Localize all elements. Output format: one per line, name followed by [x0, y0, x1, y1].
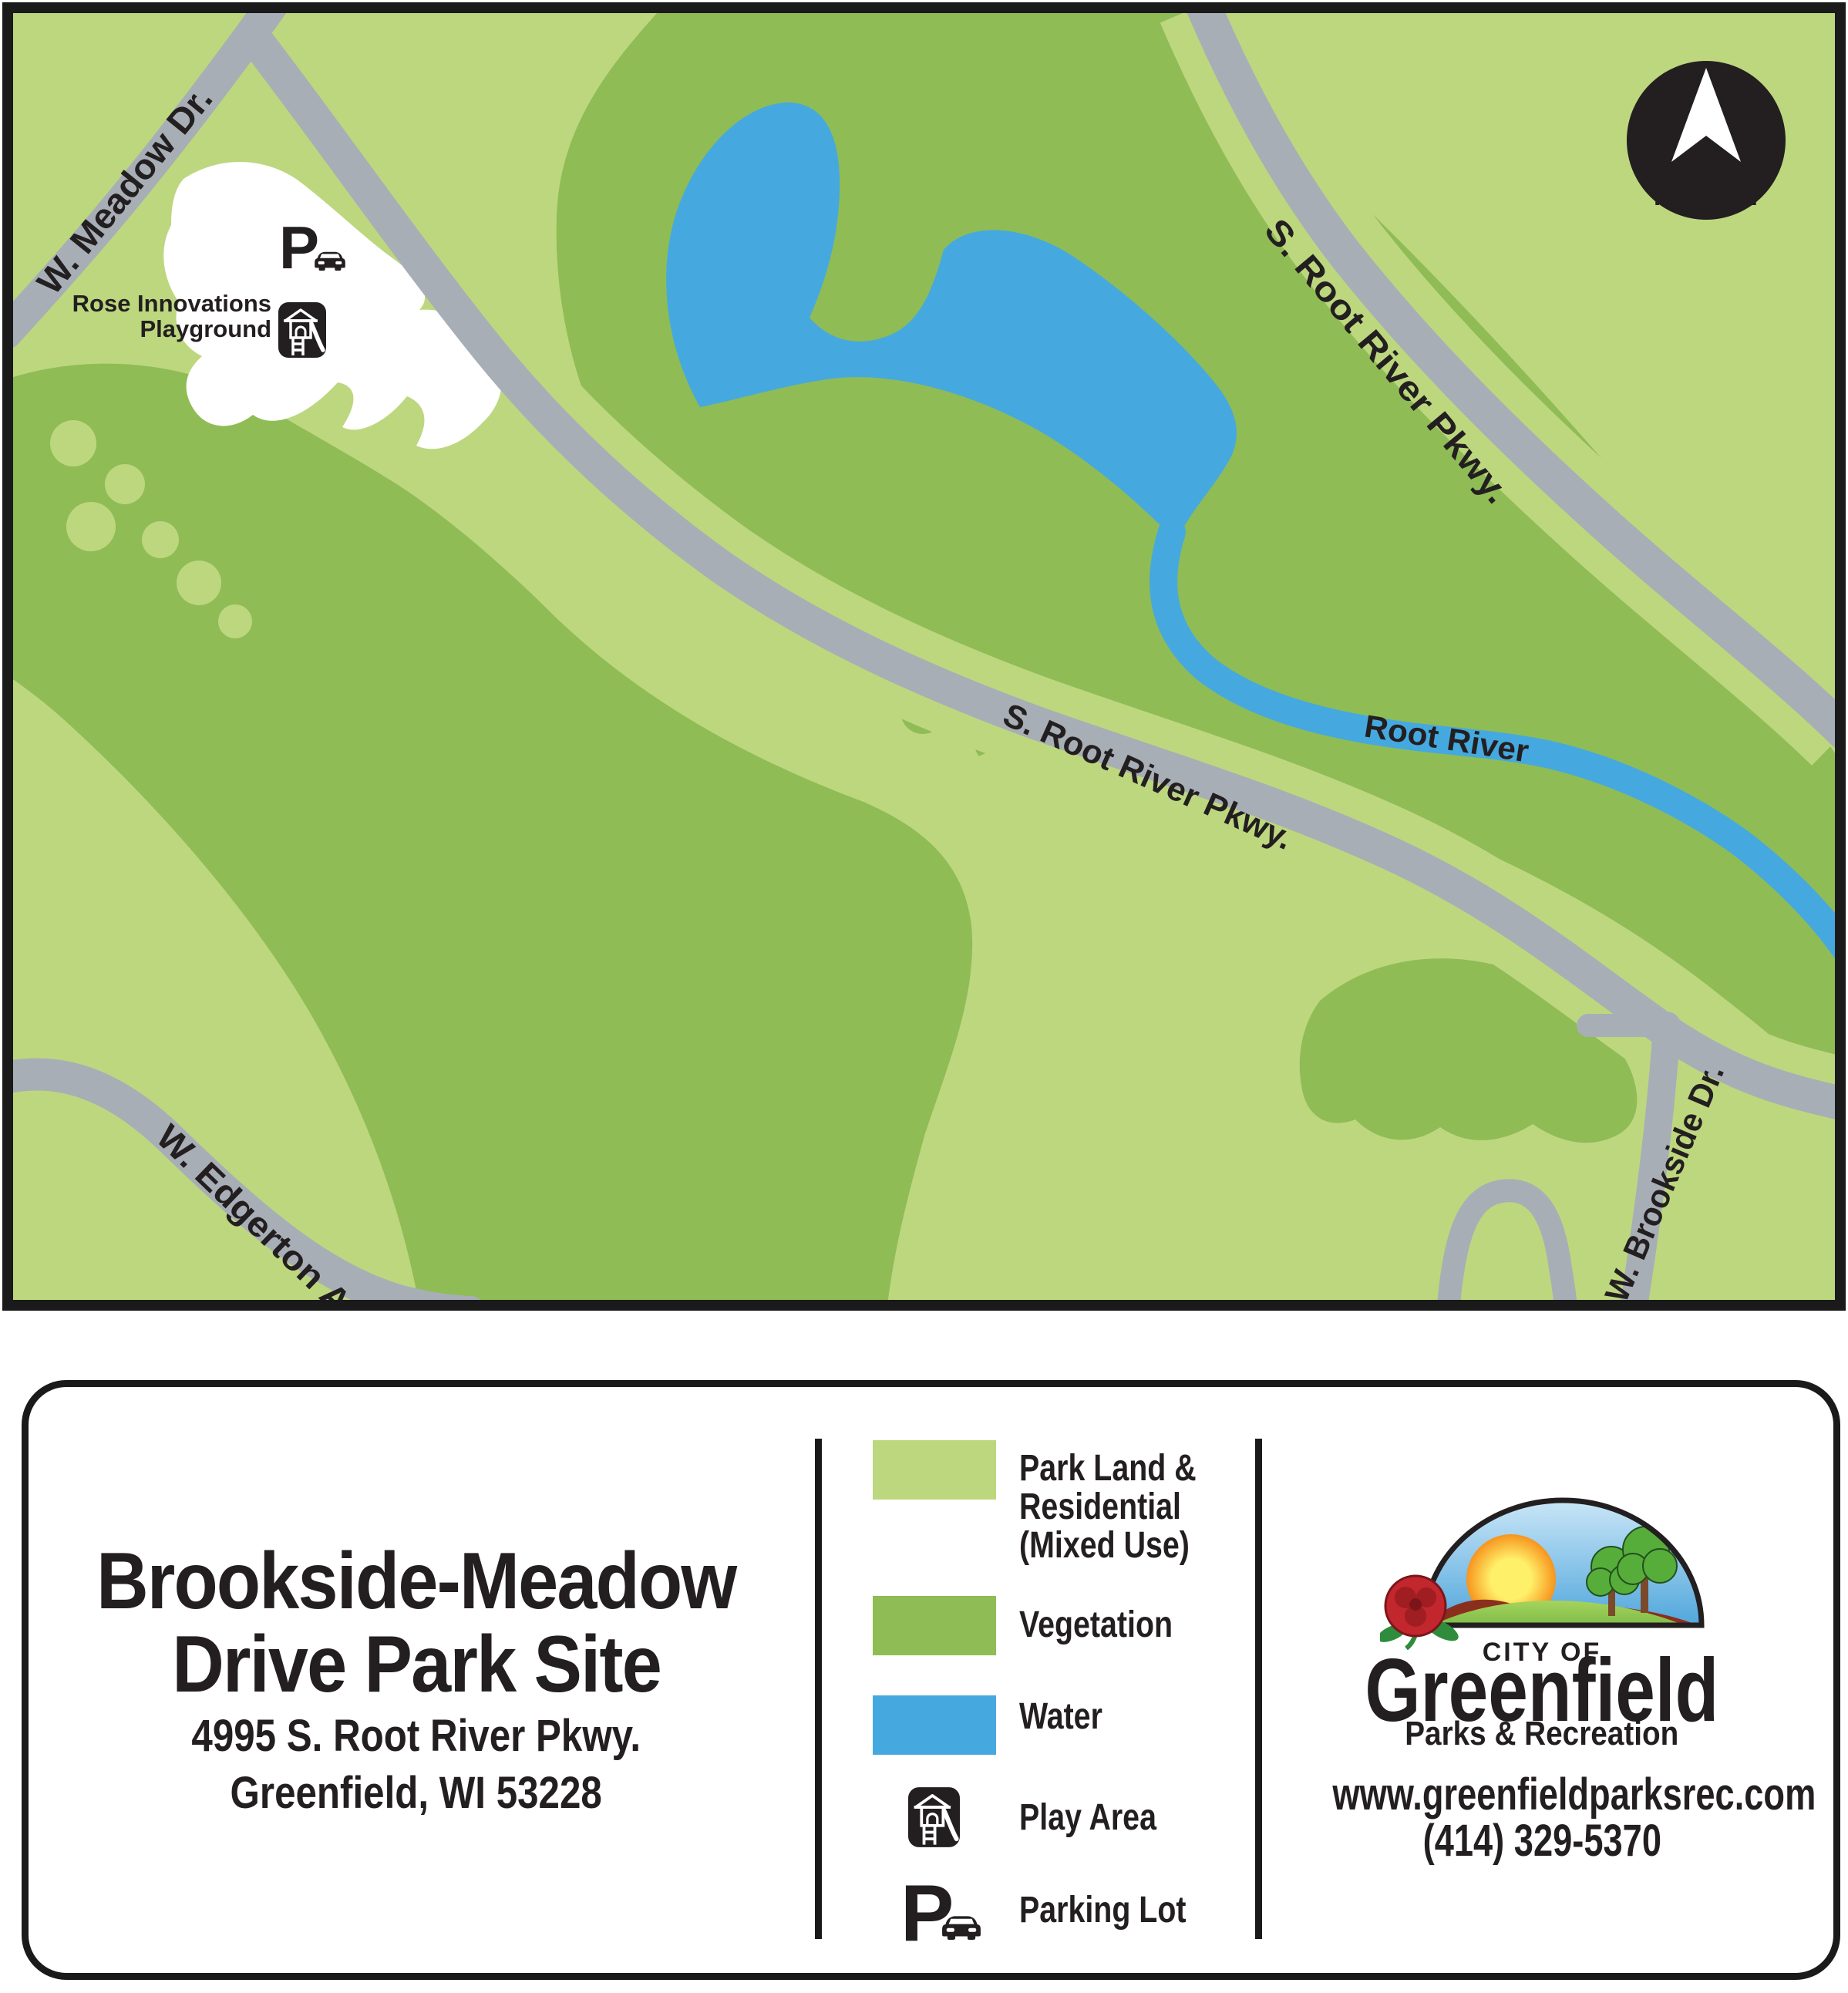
website: www.greenfieldparksrec.com: [1264, 1769, 1819, 1820]
page-title-line2-text: Drive Park Site: [172, 1624, 661, 1705]
page-title-line2: Drive Park Site: [31, 1624, 802, 1705]
logo-department: Parks & Recreation: [1264, 1715, 1819, 1753]
address-line1-text: 4995 S. Root River Pkwy.: [192, 1713, 641, 1759]
legend-car-icon: [942, 1914, 981, 1940]
page-title-line1-text: Brookside-Meadow: [96, 1540, 735, 1622]
play-area-icon: [278, 302, 326, 358]
legend-divider-right: [1255, 1439, 1262, 1939]
legend-play-area-icon: [905, 1786, 963, 1848]
legend-label-park-land-1: Park Land &: [1019, 1449, 1197, 1488]
legend-parking-icon: P: [900, 1875, 948, 1952]
legend-label-parking-lot-text: Parking Lot: [1019, 1891, 1187, 1930]
car-icon: [315, 252, 345, 271]
legend-label-play-area-text: Play Area: [1019, 1799, 1156, 1837]
phone-number: (414) 329-5370: [1264, 1815, 1819, 1867]
park-map-page: W. Meadow Dr. S. Root River Pkwy. S. Roo…: [0, 0, 1848, 1993]
page-title-line1: Brookside-Meadow: [31, 1540, 802, 1622]
legend-swatch-vegetation: [873, 1596, 996, 1655]
address-line2: Greenfield, WI 53228: [31, 1770, 802, 1816]
legend-label-vegetation-text: Vegetation: [1019, 1606, 1173, 1645]
legend-label-park-land-3: (Mixed Use): [1019, 1527, 1197, 1565]
legend-label-play-area: Play Area: [1019, 1799, 1187, 1837]
website-text: www.greenfieldparksrec.com: [1332, 1769, 1816, 1820]
phone-number-text: (414) 329-5370: [1422, 1815, 1661, 1867]
playground-label-line2: Playground: [140, 315, 271, 342]
greenfield-logo-art: [1380, 1486, 1742, 1650]
parking-symbol: P: [279, 214, 319, 281]
legend-divider-left: [815, 1439, 822, 1939]
legend-label-park-land: Park Land & Residential (Mixed Use): [1019, 1449, 1235, 1565]
north-badge: NORTH: [1627, 61, 1786, 220]
legend-label-park-land-2: Residential: [1019, 1488, 1197, 1527]
legend-label-vegetation: Vegetation: [1019, 1606, 1207, 1645]
logo-department-text: Parks & Recreation: [1405, 1715, 1678, 1753]
legend-label-water: Water: [1019, 1698, 1121, 1736]
legend-swatch-water: [873, 1695, 996, 1755]
legend-swatch-park-land: [873, 1440, 996, 1500]
legend-label-water-text: Water: [1019, 1698, 1102, 1736]
legend-label-parking-lot: Parking Lot: [1019, 1891, 1223, 1930]
address-line2-text: Greenfield, WI 53228: [231, 1770, 602, 1816]
playground-label-line1: Rose Innovations: [72, 290, 271, 317]
address-line1: 4995 S. Root River Pkwy.: [31, 1713, 802, 1759]
north-label: NORTH: [1654, 180, 1759, 211]
map: W. Meadow Dr. S. Root River Pkwy. S. Roo…: [0, 0, 1848, 1313]
